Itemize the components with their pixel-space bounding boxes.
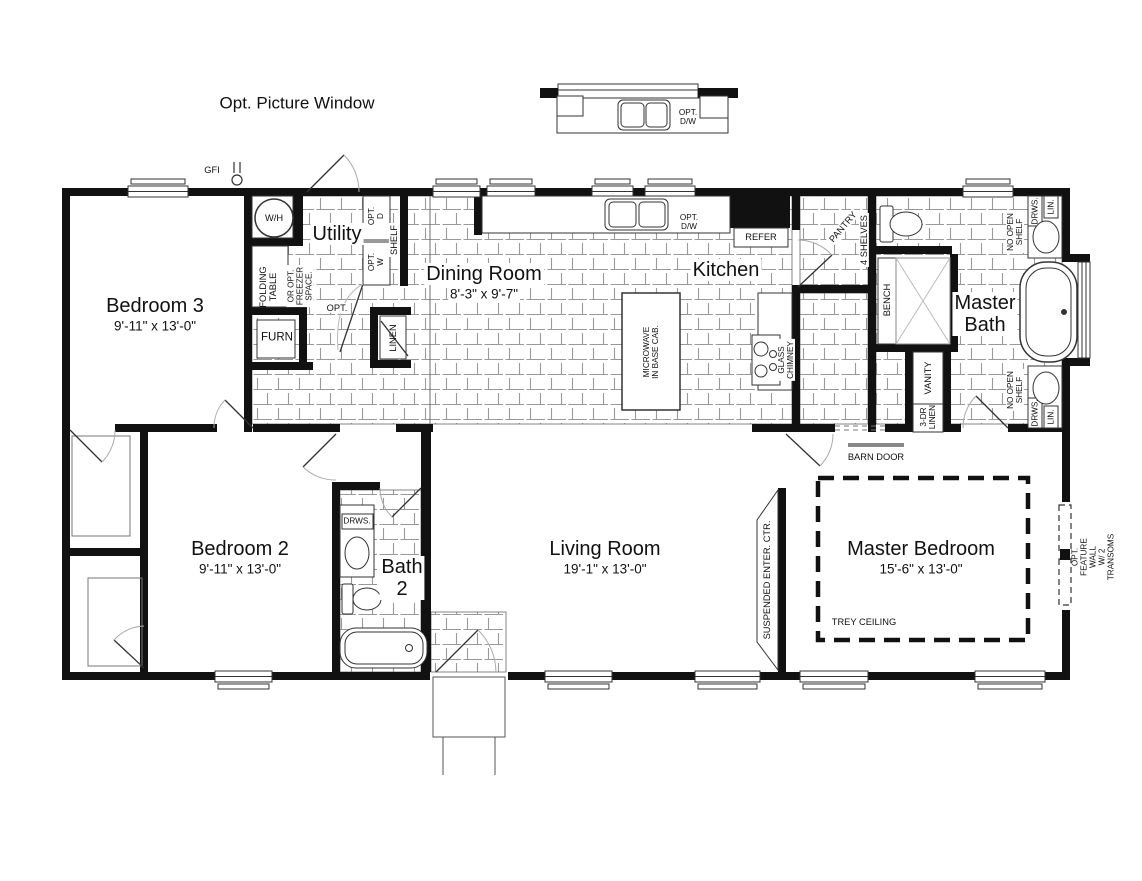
room-dims-dining: 8'-3" x 9'-7"	[448, 288, 520, 303]
lin-top-label: LIN.	[1046, 199, 1055, 214]
no-open-shelf-top-label: NO OPEN SHELF	[1006, 211, 1024, 253]
toilet-tank-icon	[342, 584, 353, 614]
drws-top-label: DRWS.	[1030, 197, 1039, 224]
sink-icon	[345, 537, 369, 569]
three-dr-linen-label: 3-DR LINEN	[919, 405, 937, 429]
room-dims-bedroom2: 9'-11" x 13'-0"	[199, 563, 281, 578]
water-heater-label: W/H	[265, 213, 283, 223]
toilet-icon	[890, 212, 922, 236]
shelf-label: SHELF	[389, 223, 399, 257]
opt-dryer-label: OPT. D	[367, 207, 385, 225]
picture-window-inset	[540, 84, 738, 133]
room-label-kitchen: Kitchen	[691, 259, 762, 281]
room-dims-master-bedroom: 15'-6" x 13'-0"	[879, 563, 962, 578]
inset-opt-dw-label: OPT. D/W	[679, 108, 697, 126]
barn-door-label: BARN DOOR	[848, 452, 904, 462]
trey-ceiling-label: TREY CEILING	[832, 617, 896, 627]
bench-label: BENCH	[882, 284, 892, 317]
four-shelves-label: 4 SHELVES	[859, 213, 869, 267]
folding-table-label: FOLDING TABLE	[258, 266, 278, 307]
room-label-dining: Dining Room	[424, 263, 544, 285]
bath2-drws-label: DRWS.	[343, 516, 370, 525]
kitchen-opt-dw-label: OPT. D/W	[680, 213, 698, 231]
bay-window	[1078, 262, 1090, 358]
transom-windows	[1059, 502, 1071, 610]
opt-feature-wall-label: OPT. FEATURE WALL W/ 2 TRANSOMS	[1070, 533, 1115, 582]
gfi-label: GFI	[204, 165, 220, 175]
room-label-master-bath: Master Bath	[952, 292, 1017, 336]
no-open-shelf-bottom-label: NO OPEN SHELF	[1006, 369, 1024, 411]
drws-bottom-label: DRWS.	[1030, 399, 1039, 426]
opt-door-label: OPT.	[325, 303, 350, 313]
entry-steps	[433, 677, 505, 775]
floor-plan: Opt. Picture Window OPT. D/W GFI Bedroom…	[0, 0, 1142, 881]
opt-picture-window-note: Opt. Picture Window	[220, 95, 375, 114]
floor-plan-drawing	[0, 0, 1142, 881]
cooktop-icon	[752, 335, 780, 385]
gfi-outlet-icon	[232, 162, 242, 185]
refer-label: REFER	[745, 232, 777, 242]
freezer-space-label: OR OPT. FREEZER SPACE.	[286, 265, 313, 307]
opt-washer-label: OPT. W	[367, 253, 385, 271]
furnace-label: FURN	[261, 332, 293, 345]
room-dims-living: 19'-1" x 13'-0"	[563, 563, 646, 578]
room-label-bedroom3: Bedroom 3	[106, 295, 204, 317]
room-label-bath2: Bath 2	[379, 556, 424, 600]
room-label-bedroom2: Bedroom 2	[191, 538, 289, 560]
lin-bottom-label: LIN.	[1046, 409, 1055, 424]
room-label-living: Living Room	[549, 538, 660, 560]
glass-chimney-label: GLASS CHIMNEY	[777, 339, 795, 381]
suspended-enter-ctr-label: SUSPENDED ENTER. CTR.	[762, 521, 772, 640]
microwave-label: MICROWAVE IN BASE CAB.	[642, 325, 660, 379]
vanity-label: VANITY	[923, 362, 933, 395]
toilet-icon	[353, 588, 381, 610]
linen-label: LINEN	[388, 324, 398, 351]
room-dims-bedroom3: 9'-11" x 13'-0"	[114, 320, 196, 335]
room-label-master-bedroom: Master Bedroom	[847, 538, 995, 560]
sink-icon	[1033, 221, 1059, 253]
room-label-utility: Utility	[311, 223, 364, 245]
